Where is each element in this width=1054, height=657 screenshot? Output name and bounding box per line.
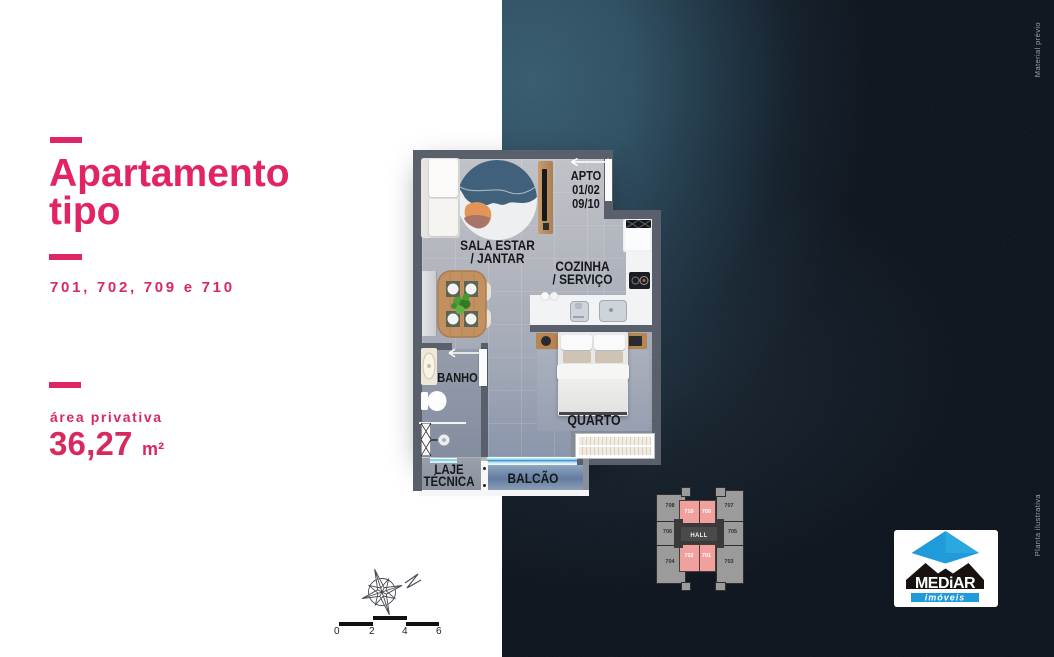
svg-text:imóveis: imóveis (925, 593, 966, 603)
svg-text:MEDiAR: MEDiAR (915, 575, 976, 592)
